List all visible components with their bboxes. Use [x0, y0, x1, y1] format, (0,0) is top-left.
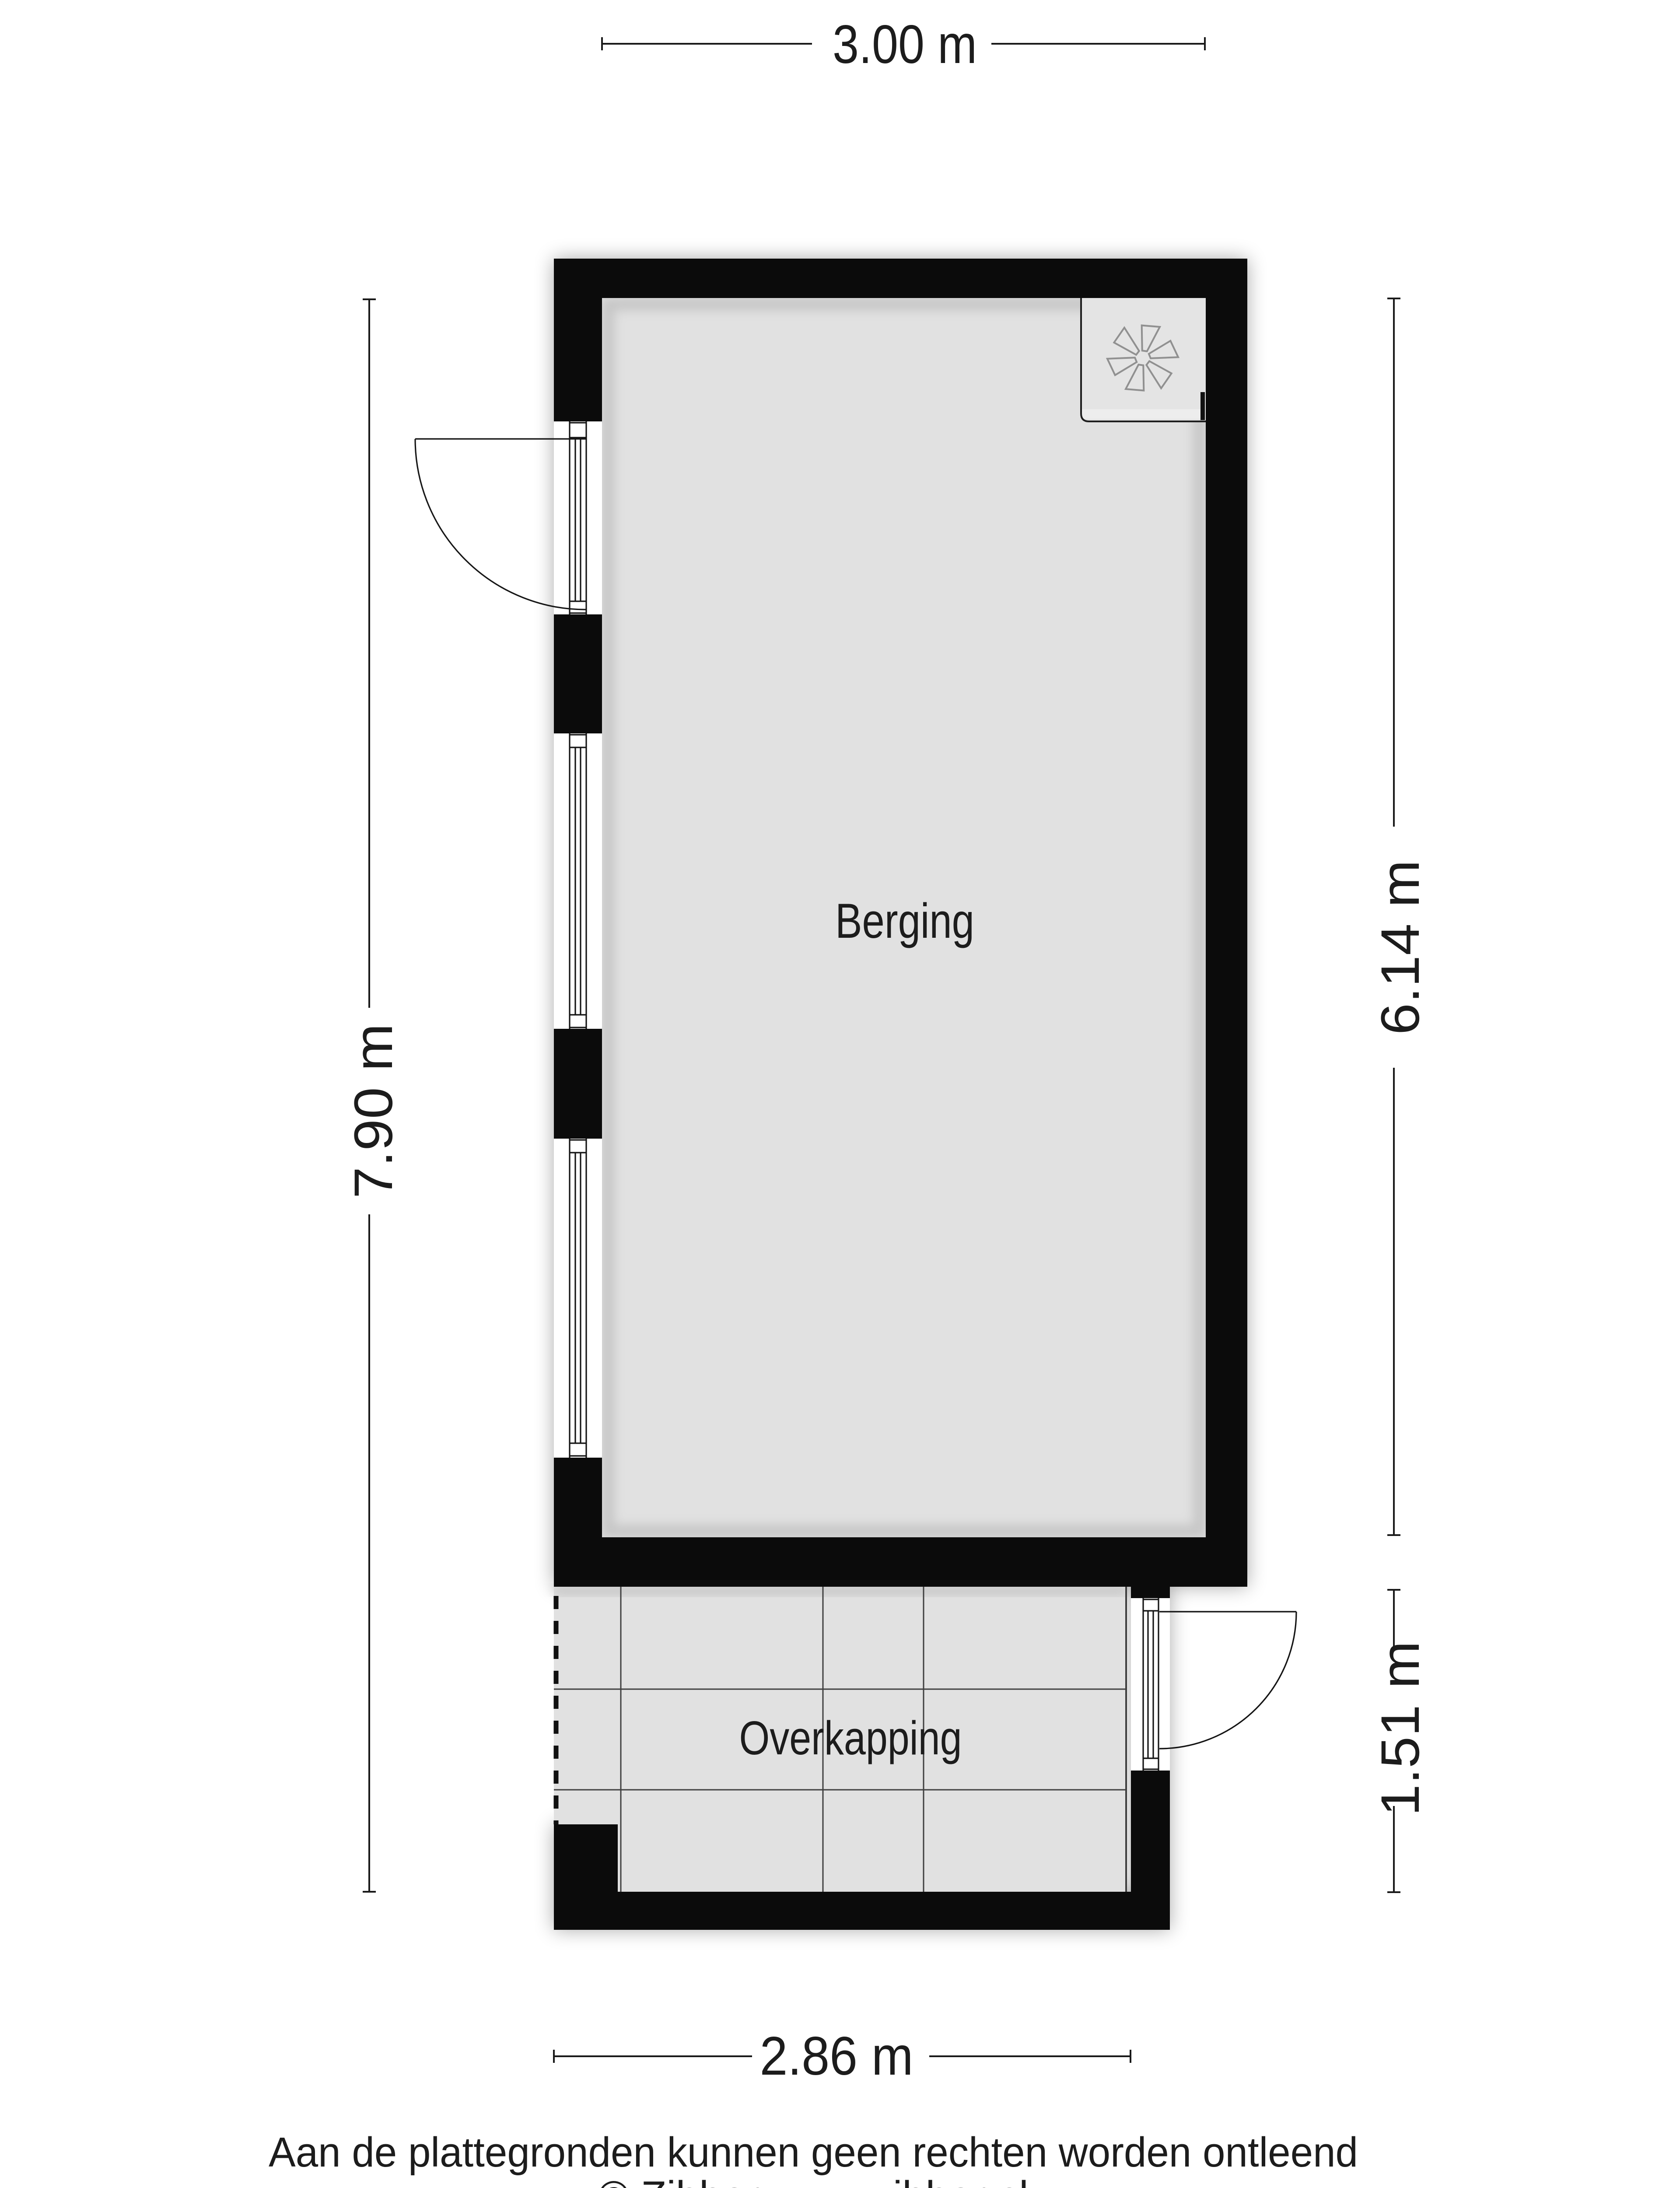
- svg-text:Berging: Berging: [835, 894, 974, 948]
- svg-text:6.14 m: 6.14 m: [1370, 860, 1431, 1035]
- svg-text:Aan de plattegronden kunnen ge: Aan de plattegronden kunnen geen rechten…: [269, 2129, 1358, 2176]
- svg-text:Overkapping: Overkapping: [739, 1711, 962, 1765]
- svg-text:1.51 m: 1.51 m: [1370, 1641, 1431, 1816]
- svg-text:7.90 m: 7.90 m: [343, 1024, 404, 1199]
- svg-text:2.86 m: 2.86 m: [760, 2026, 913, 2086]
- svg-text:3.00 m: 3.00 m: [833, 14, 977, 75]
- svg-text:© Zibber www.zibber.nl: © Zibber www.zibber.nl: [598, 2173, 1028, 2188]
